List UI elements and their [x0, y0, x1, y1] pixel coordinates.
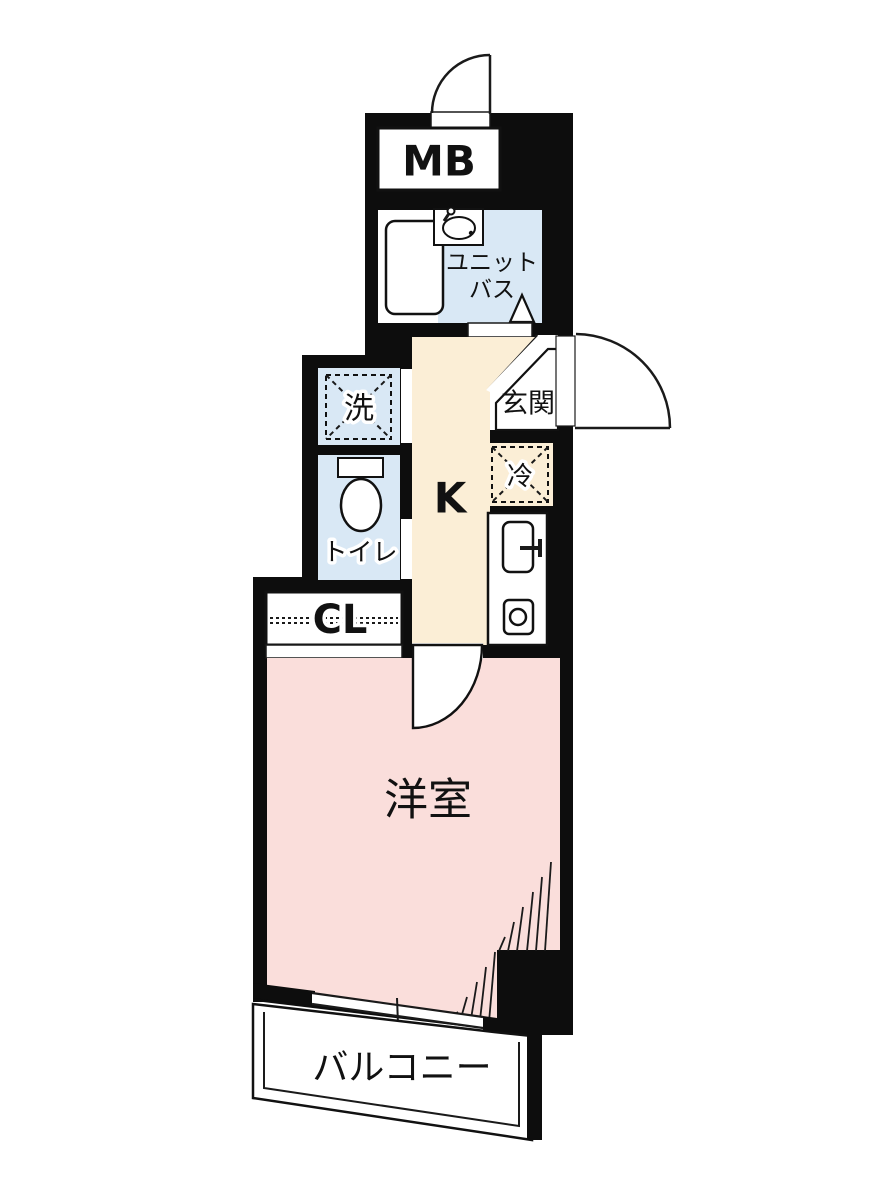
floor-plan: MB ユニット バス 洗 トイレ [0, 0, 880, 1200]
mb-door-swing-arc [432, 55, 490, 113]
western-room-label: 洋室 [384, 775, 472, 826]
floor-plan-page: MB ユニット バス 洗 トイレ [0, 0, 880, 1200]
kitchen-counter [488, 513, 547, 645]
closet-label: CL [313, 597, 368, 643]
closet-front-strip [266, 645, 402, 658]
toilet-bowl [341, 479, 381, 531]
wash-basin [434, 208, 483, 246]
refrigerator-space: 冷 [488, 443, 553, 506]
unit-bath-label-line1: ユニット [446, 250, 538, 276]
fridge-label: 冷 [507, 462, 533, 492]
wash-basin-bowl [443, 217, 475, 239]
wash-basin-drain [469, 231, 473, 235]
unit-bath-room: ユニット バス [378, 208, 542, 338]
mb-label: MB [402, 137, 476, 186]
mb-door-opening [431, 112, 490, 128]
balcony-side-wall [527, 1030, 542, 1140]
balcony-label: バルコニー [312, 1048, 491, 1089]
wash-basin-tap-handle [448, 208, 455, 215]
bath-door-opening [468, 323, 532, 337]
front-door-swing-arc [576, 334, 670, 428]
unit-bath-label-line2: バス [469, 277, 515, 303]
stove-burner [510, 609, 526, 625]
washer-label: 洗 [344, 392, 374, 427]
entrance-label: 玄関 [501, 389, 555, 420]
toilet-tank [338, 458, 383, 477]
toilet-label: トイレ [322, 538, 397, 567]
front-door-opening [556, 336, 575, 426]
kitchen-label: K [434, 474, 468, 523]
